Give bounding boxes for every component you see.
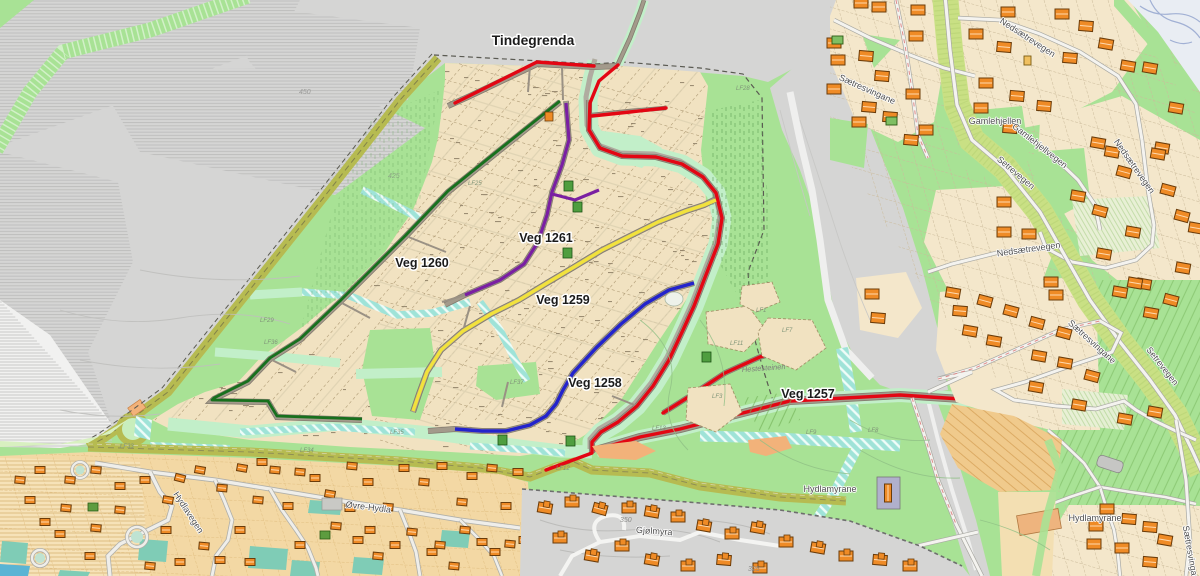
svg-text:350: 350: [620, 517, 632, 524]
svg-text:Veg 1259: Veg 1259: [536, 293, 590, 307]
svg-text:LF37: LF37: [510, 380, 524, 386]
svg-text:LF34: LF34: [300, 448, 314, 454]
svg-text:LF3: LF3: [712, 394, 723, 400]
svg-text:Tindegrenda: Tindegrenda: [492, 33, 575, 48]
svg-text:LF1: LF1: [756, 308, 766, 314]
svg-text:LF33: LF33: [120, 444, 134, 450]
svg-text:Veg 1258: Veg 1258: [568, 376, 622, 390]
svg-text:LF11: LF11: [730, 341, 743, 347]
svg-text:LF35: LF35: [390, 430, 404, 436]
svg-text:LF25: LF25: [468, 181, 482, 187]
svg-text:LF13: LF13: [652, 426, 666, 432]
svg-text:LF29: LF29: [260, 318, 274, 324]
svg-text:Veg 1261: Veg 1261: [519, 231, 573, 245]
svg-text:LF36: LF36: [264, 340, 278, 346]
svg-text:Veg 1257: Veg 1257: [781, 387, 835, 401]
svg-text:LF7: LF7: [782, 328, 793, 334]
svg-text:LF28: LF28: [736, 86, 750, 92]
svg-text:Hydlamyrane: Hydlamyrane: [1068, 513, 1121, 523]
svg-text:LF12: LF12: [556, 466, 570, 472]
svg-text:Veg 1260: Veg 1260: [395, 256, 449, 270]
svg-text:LF9: LF9: [806, 430, 817, 436]
svg-text:Hydlamyrane: Hydlamyrane: [803, 484, 856, 494]
svg-text:450: 450: [299, 89, 311, 96]
svg-text:325: 325: [748, 566, 760, 573]
svg-text:LF8: LF8: [868, 428, 879, 434]
